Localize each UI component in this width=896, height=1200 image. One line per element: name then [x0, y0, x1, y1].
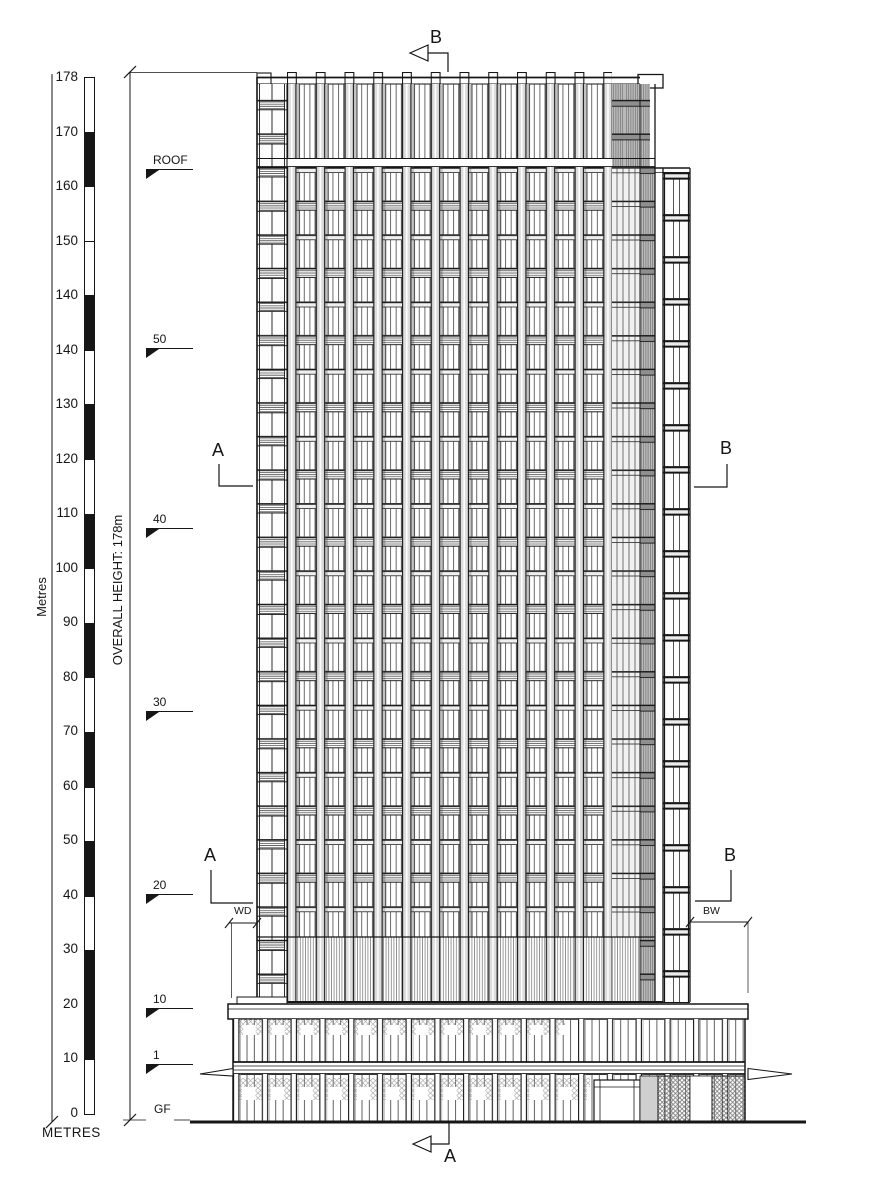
- scale-tick-label: 140: [34, 343, 78, 357]
- scale-bar-segment: [85, 514, 94, 569]
- scale-tick-label: 30: [34, 942, 78, 956]
- scale-bar-segment: [85, 241, 94, 296]
- scale-bar-segment: [85, 132, 94, 187]
- scale-bar-segment: [85, 78, 94, 132]
- scale-bar-segment: [85, 896, 94, 951]
- scale-tick-label: 150: [34, 234, 78, 248]
- scale-tick-label: 140: [34, 288, 78, 302]
- scale-bar-segment: [85, 295, 94, 350]
- tower-elevation: [257, 72, 690, 1002]
- scale-bar-segment: [85, 841, 94, 896]
- section-label-a-lower-left: A: [204, 845, 216, 865]
- overall-height-dimension-label: OVERALL HEIGHT: 178m: [110, 490, 124, 690]
- scale-bar-segment: [85, 350, 94, 405]
- scale-tick-label: 60: [34, 779, 78, 793]
- width-dim-label-wd: WD: [234, 905, 252, 917]
- level-marker-gf: GF: [150, 1102, 194, 1118]
- scale-bar-segment: [85, 1005, 94, 1060]
- scale-tick-label: 170: [34, 125, 78, 139]
- scale-tick-label: 50: [34, 833, 78, 847]
- scale-unit-side-label: Metres: [34, 567, 48, 627]
- section-label-a-bottom: A: [444, 1146, 456, 1166]
- level-marker-30: 30: [146, 695, 193, 712]
- level-marker-10: 10: [146, 992, 193, 1009]
- scale-tick-label: 0: [34, 1106, 78, 1120]
- scale-bar-segment: [85, 404, 94, 459]
- section-label-b-top: B: [430, 27, 442, 47]
- drawing-linework: [0, 0, 896, 1200]
- scale-tick-label: 40: [34, 888, 78, 902]
- scale-bar-segment: [85, 1059, 94, 1114]
- section-label-b-lower-right: B: [724, 845, 736, 865]
- scale-tick-label: 178: [34, 70, 78, 84]
- scale-tick-label: 80: [34, 670, 78, 684]
- scale-bar-segment: [85, 186, 94, 241]
- scale-bar-segment: [85, 568, 94, 623]
- scale-tick-label: 70: [34, 724, 78, 738]
- podium-elevation: [190, 997, 806, 1122]
- scale-unit-bottom-label: METRES: [42, 1125, 102, 1140]
- scale-tick-label: 20: [34, 997, 78, 1011]
- scale-tick-label: 120: [34, 452, 78, 466]
- scale-bar-segment: [85, 623, 94, 678]
- scale-bar-segment: [85, 459, 94, 514]
- scale-tick-label: 10: [34, 1051, 78, 1065]
- level-marker-50: 50: [146, 332, 193, 349]
- section-label-a-upper-left: A: [212, 440, 224, 460]
- level-marker-1: 1: [146, 1048, 193, 1065]
- width-dim-label-bw: BW: [703, 905, 720, 917]
- level-marker-20: 20: [146, 878, 193, 895]
- scale-bar-segment: [85, 787, 94, 842]
- scale-bar-segment: [85, 732, 94, 787]
- section-label-b-upper-right: B: [720, 438, 732, 458]
- level-marker-roof: ROOF: [146, 153, 193, 170]
- elevation-drawing-sheet: 1781701601501401401301201101009080706050…: [0, 0, 896, 1200]
- scale-tick-label: 110: [34, 506, 78, 520]
- level-marker-40: 40: [146, 512, 193, 529]
- scale-tick-label: 130: [34, 397, 78, 411]
- scale-bar: [84, 77, 95, 1115]
- scale-tick-label: 160: [34, 179, 78, 193]
- scale-bar-segment: [85, 950, 94, 1005]
- scale-bar-segment: [85, 677, 94, 732]
